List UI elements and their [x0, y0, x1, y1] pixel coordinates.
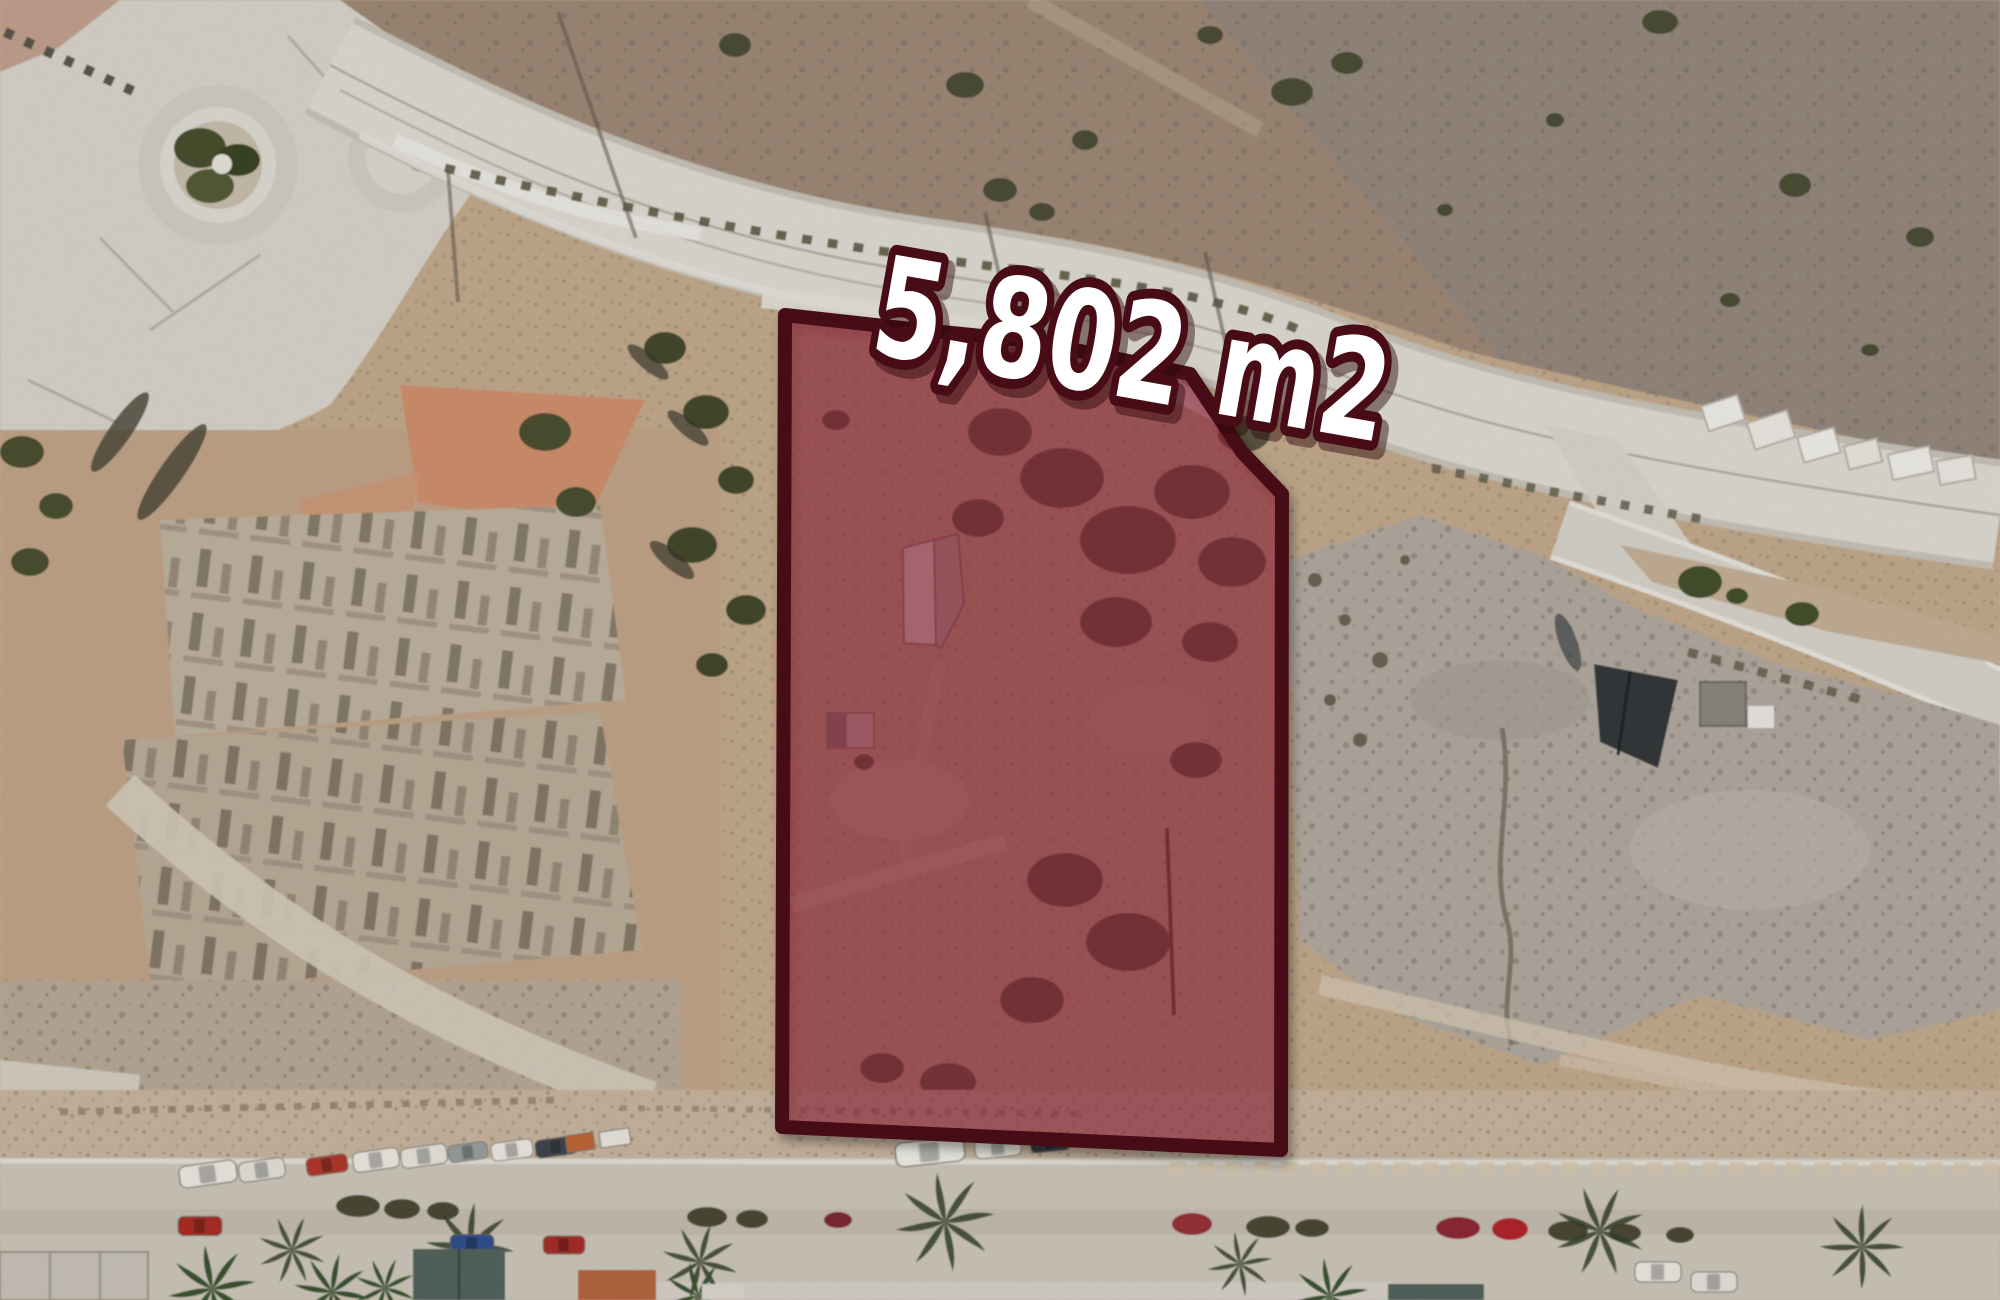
satellite-map: 5,802 m2 5,802 m2 [0, 0, 2000, 1300]
map-canvas: 5,802 m2 5,802 m2 [0, 0, 2000, 1300]
